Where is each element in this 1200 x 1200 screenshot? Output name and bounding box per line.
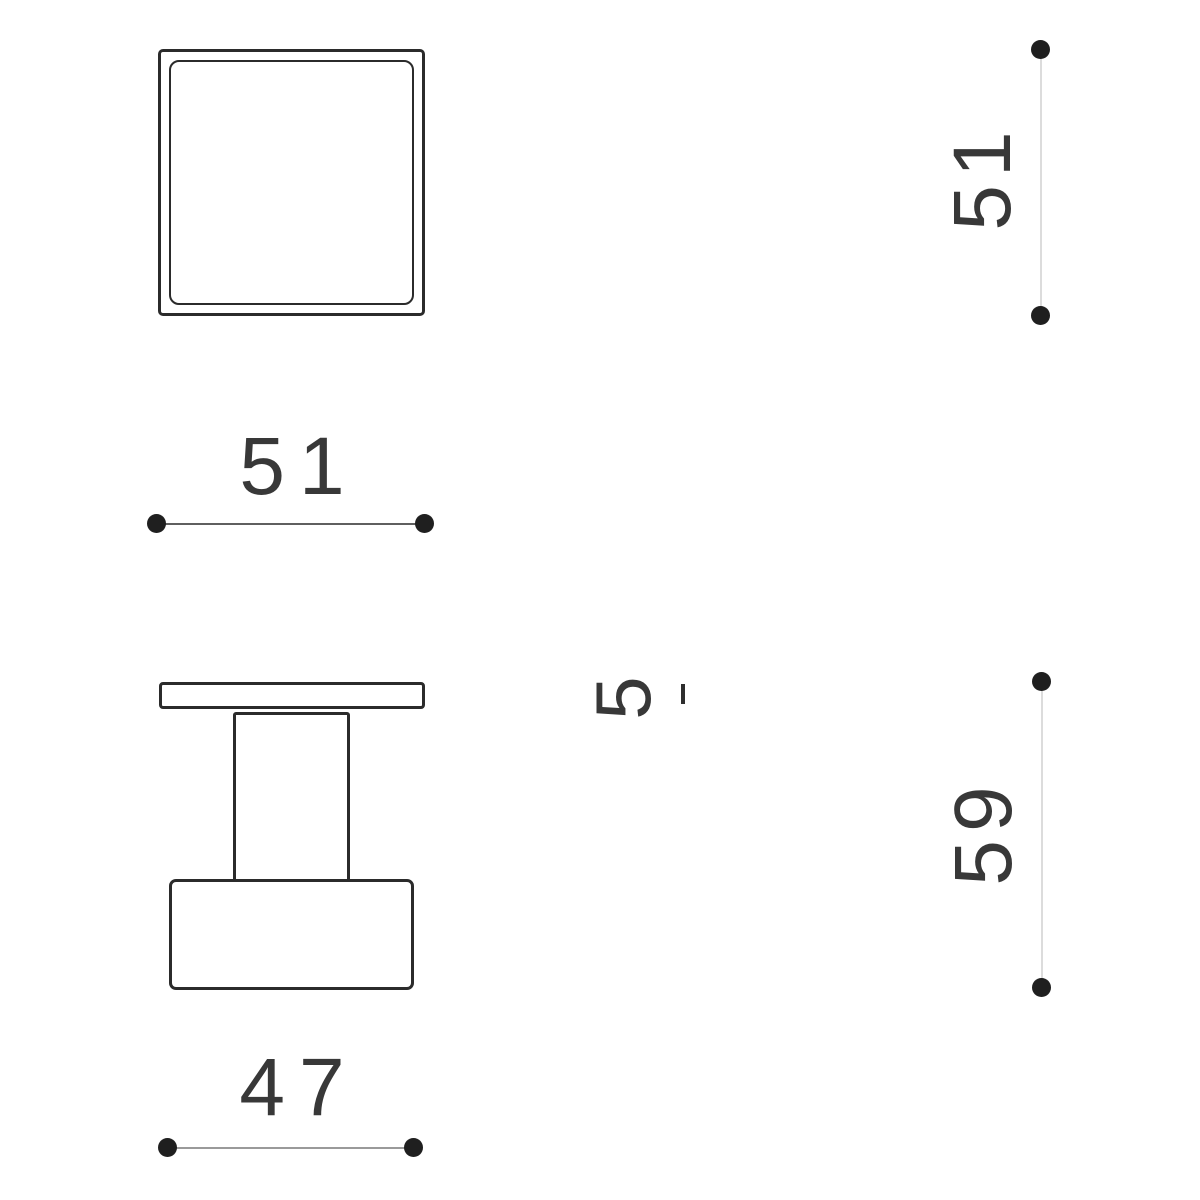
dim-line-side-width — [168, 1147, 414, 1149]
front-view-inner-square — [169, 60, 414, 305]
dim-line-front-height — [1040, 50, 1042, 316]
dim-label-side-height: 59 — [942, 682, 1026, 982]
dim-endpoint-dot — [415, 514, 434, 533]
dim-endpoint-dot — [1031, 40, 1050, 59]
dim-endpoint-dot — [147, 514, 166, 533]
side-view-base — [169, 879, 414, 990]
dim-endpoint-dot — [1032, 672, 1051, 691]
dimension-diagram: 51 51 5 59 47 — [0, 0, 1200, 1200]
side-view-stem — [233, 712, 350, 882]
clipped-digit-stroke — [681, 684, 685, 704]
dim-endpoint-dot — [158, 1138, 177, 1157]
dim-label-partial: 5 — [581, 544, 665, 844]
side-view-flange — [159, 682, 425, 709]
dim-label-front-height: 51 — [941, 27, 1025, 327]
dim-line-side-height — [1041, 682, 1043, 988]
dim-endpoint-dot — [1032, 978, 1051, 997]
dim-label-front-width: 51 — [149, 425, 449, 509]
dim-endpoint-dot — [404, 1138, 423, 1157]
dim-label-side-width: 47 — [149, 1046, 449, 1130]
dim-line-front-width — [157, 523, 425, 525]
dim-endpoint-dot — [1031, 306, 1050, 325]
